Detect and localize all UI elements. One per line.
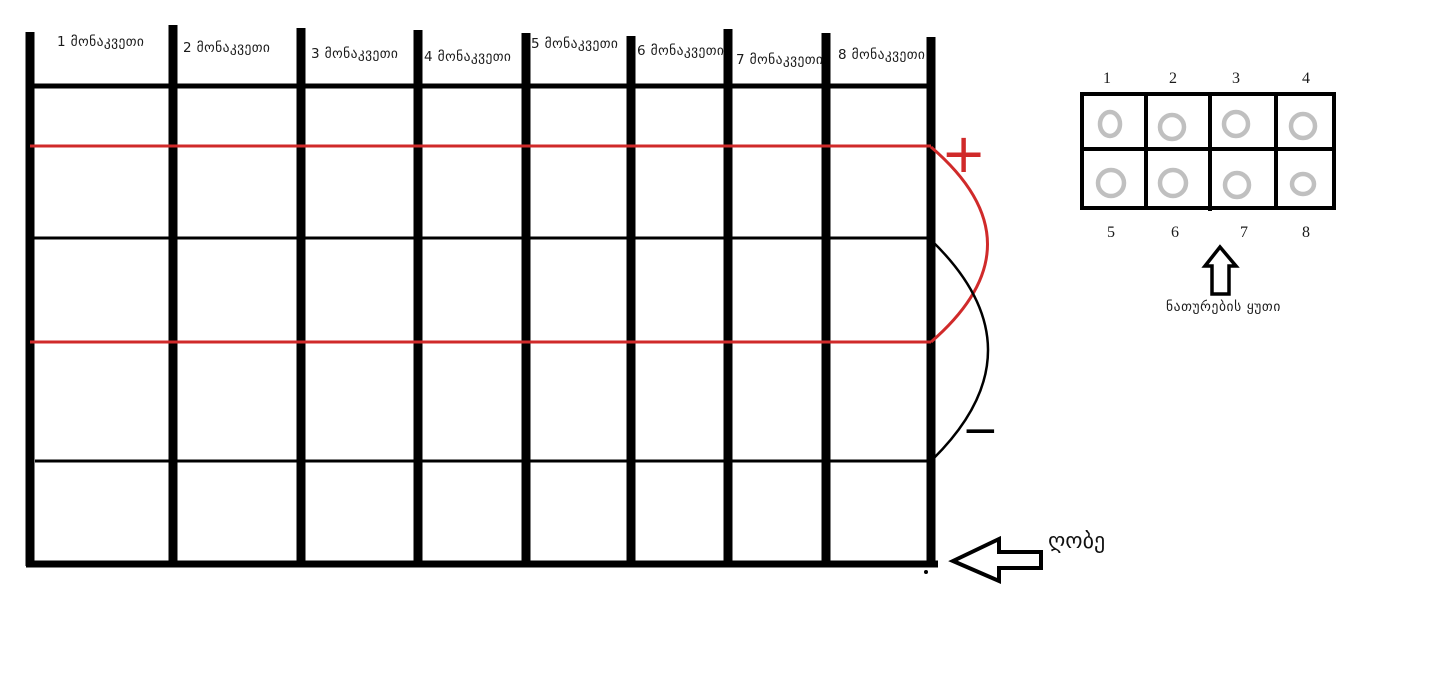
- bulb-number: 6: [1171, 224, 1179, 241]
- section-label-7: 7 მონაკვეთი: [736, 52, 823, 68]
- lightbox-caption: ნათურების ყუთი: [1166, 299, 1281, 315]
- section-label-1: 1 მონაკვეთი: [57, 34, 144, 50]
- bulb-number: 2: [1169, 70, 1177, 87]
- fence-diagram: + − 1 2 3 4 5 6 7: [0, 0, 1434, 689]
- fence-label: ღობე: [1048, 529, 1105, 554]
- paint-canvas: + − 1 2 3 4 5 6 7: [0, 0, 1434, 689]
- stray-dot: [924, 570, 928, 574]
- bulb-icon: [1224, 112, 1248, 136]
- section-label-6: 6 მონაკვეთი: [637, 43, 724, 59]
- bulb-icon: [1160, 170, 1186, 196]
- plus-sign: +: [941, 122, 986, 185]
- bulb-number: 5: [1107, 224, 1115, 241]
- bulb-icon: [1292, 174, 1314, 194]
- section-label-2: 2 მონაკვეთი: [183, 40, 270, 56]
- bulb-number: 4: [1302, 70, 1310, 87]
- lightbulb-box: 1 2 3 4 5 6 7 8: [1082, 70, 1334, 241]
- section-label-8: 8 მონაკვეთი: [838, 47, 925, 63]
- bulb-number: 3: [1232, 70, 1240, 87]
- bulb-number: 7: [1240, 224, 1248, 241]
- bulb-icon: [1098, 170, 1124, 196]
- bulb-sockets: [1098, 112, 1315, 197]
- bulb-number: 1: [1103, 70, 1111, 87]
- bulb-icon: [1160, 115, 1184, 139]
- fence-posts: [30, 25, 931, 566]
- bulb-icon: [1225, 173, 1249, 197]
- up-arrow-icon: [1205, 247, 1236, 294]
- section-label-4: 4 მონაკვეთი: [424, 49, 511, 65]
- section-label-5: 5 მონაკვეთი: [531, 36, 618, 52]
- bulb-icon: [1100, 112, 1120, 136]
- minus-sign: −: [962, 405, 999, 456]
- section-label-3: 3 მონაკვეთი: [311, 46, 398, 62]
- bulb-icon: [1291, 114, 1315, 138]
- left-arrow-icon: [953, 539, 1041, 581]
- bulb-number: 8: [1302, 224, 1310, 241]
